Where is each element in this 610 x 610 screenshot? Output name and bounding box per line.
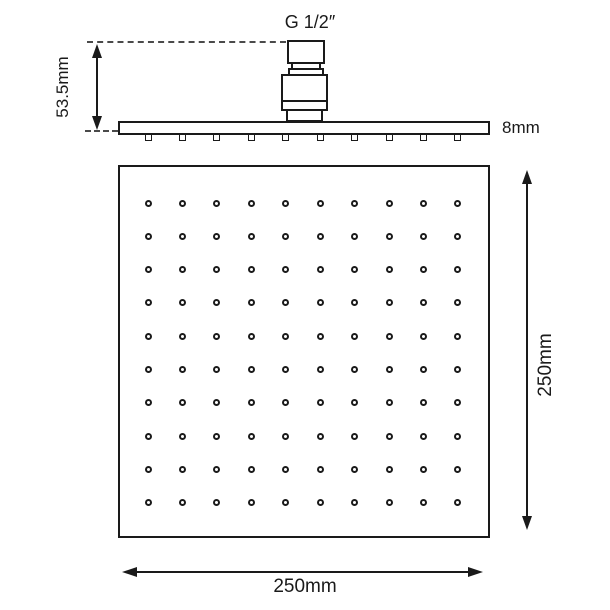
- nozzle-hole: [248, 299, 255, 306]
- top-extent-dashed-line: [87, 41, 286, 43]
- nozzle-hole: [213, 399, 220, 406]
- nozzle-hole: [213, 499, 220, 506]
- nozzle-hole: [351, 299, 358, 306]
- nozzle-hole: [420, 333, 427, 340]
- shower-head-front-view: 250mm 250mm: [0, 150, 610, 610]
- nozzle-hole: [213, 233, 220, 240]
- nozzle-hole: [454, 266, 461, 273]
- nozzle-hole: [179, 266, 186, 273]
- nozzle-hole: [145, 233, 152, 240]
- nozzle-hole: [179, 366, 186, 373]
- connector-top-block: [287, 40, 325, 64]
- nozzle-hole: [248, 366, 255, 373]
- nozzle-hole: [454, 299, 461, 306]
- shower-plate-side: [118, 121, 490, 135]
- nozzle-hole: [386, 366, 393, 373]
- nozzle-hole: [248, 433, 255, 440]
- nozzle-hole: [317, 366, 324, 373]
- nozzle-hole: [386, 399, 393, 406]
- nozzle-hole: [420, 299, 427, 306]
- nozzle-hole: [282, 233, 289, 240]
- nozzle-hole: [386, 433, 393, 440]
- nozzle-hole: [179, 433, 186, 440]
- nozzle-hole: [454, 233, 461, 240]
- nozzle-hole: [420, 200, 427, 207]
- nozzle-hole: [213, 433, 220, 440]
- nozzle-hole: [179, 399, 186, 406]
- nozzle-hole: [386, 333, 393, 340]
- nozzle-hole: [179, 233, 186, 240]
- nozzle-hole: [213, 299, 220, 306]
- nozzle-hole: [351, 200, 358, 207]
- nozzle-hole: [145, 299, 152, 306]
- nozzle-hole: [213, 466, 220, 473]
- nozzle-hole: [179, 333, 186, 340]
- height-dimension-label-front: 250mm: [536, 325, 556, 405]
- nozzle-hole: [248, 399, 255, 406]
- nozzle-hole: [351, 366, 358, 373]
- nozzle-hole: [420, 266, 427, 273]
- nozzle-hole: [317, 466, 324, 473]
- nozzle-hole: [179, 466, 186, 473]
- thread-size-label: G 1/2″: [260, 13, 360, 31]
- nozzle-hole: [351, 499, 358, 506]
- nozzle-hole: [179, 200, 186, 207]
- nozzle-hole: [145, 399, 152, 406]
- nozzle-hole: [420, 466, 427, 473]
- nozzle-hole: [454, 399, 461, 406]
- nozzle-hole: [454, 466, 461, 473]
- nozzle-hole: [248, 333, 255, 340]
- nozzle-hole: [454, 200, 461, 207]
- nozzle-hole: [248, 200, 255, 207]
- nozzle-hole: [213, 366, 220, 373]
- nozzle-hole: [420, 499, 427, 506]
- nozzle-hole: [145, 200, 152, 207]
- nozzle-hole: [248, 266, 255, 273]
- nozzle-hole: [386, 200, 393, 207]
- nozzle-hole: [386, 233, 393, 240]
- nozzle-hole: [454, 366, 461, 373]
- nozzle-hole: [420, 399, 427, 406]
- nozzle-hole: [248, 466, 255, 473]
- nozzle-hole: [145, 333, 152, 340]
- nozzle-hole: [351, 233, 358, 240]
- height-dimension-arrow-front: [526, 183, 528, 517]
- nozzle-hole: [317, 299, 324, 306]
- nozzle-hole: [351, 333, 358, 340]
- shower-head-side-view: G 1/2″ 53.5mm 8mm: [0, 0, 610, 150]
- nozzle-hole: [282, 333, 289, 340]
- nozzle-hole: [351, 433, 358, 440]
- nozzle-hole: [145, 266, 152, 273]
- nozzle-hole: [351, 466, 358, 473]
- nozzle-hole: [420, 433, 427, 440]
- nozzle-hole: [386, 266, 393, 273]
- nozzle-hole: [282, 433, 289, 440]
- nozzle-hole: [386, 499, 393, 506]
- height-dimension-label-side: 53.5mm: [54, 52, 72, 122]
- nozzle-hole: [454, 433, 461, 440]
- nozzle-hole: [454, 333, 461, 340]
- nozzle-hole: [282, 299, 289, 306]
- width-dimension-arrow-front: [136, 571, 469, 573]
- nozzle-hole: [317, 499, 324, 506]
- nozzle-hole: [282, 366, 289, 373]
- shower-head-dimension-diagram: G 1/2″ 53.5mm 8mm 250mm 250mm: [0, 0, 610, 610]
- nozzle-hole: [317, 266, 324, 273]
- nozzle-grid: [118, 165, 490, 538]
- nozzle-hole: [317, 433, 324, 440]
- nozzle-hole: [145, 499, 152, 506]
- nozzle-hole: [282, 200, 289, 207]
- nozzle-hole: [420, 233, 427, 240]
- nozzle-hole: [282, 399, 289, 406]
- nozzle-hole: [317, 333, 324, 340]
- nozzle-hole: [317, 399, 324, 406]
- width-dimension-label-front: 250mm: [255, 578, 355, 596]
- nozzle-hole: [248, 499, 255, 506]
- nozzle-hole: [179, 299, 186, 306]
- nozzle-hole: [213, 266, 220, 273]
- nozzle-hole: [282, 266, 289, 273]
- nozzle-hole: [317, 233, 324, 240]
- nozzle-hole: [386, 299, 393, 306]
- nozzle-hole: [213, 200, 220, 207]
- connector-body: [281, 74, 328, 102]
- nozzle-hole: [145, 366, 152, 373]
- thickness-label: 8mm: [502, 119, 540, 137]
- nozzle-hole: [317, 200, 324, 207]
- nozzle-hole: [179, 499, 186, 506]
- nozzle-hole: [454, 499, 461, 506]
- nozzle-hole: [282, 466, 289, 473]
- nozzle-hole: [351, 266, 358, 273]
- height-dimension-arrow-side: [96, 57, 98, 117]
- nozzle-hole: [282, 499, 289, 506]
- bottom-extent-dashed-line: [85, 130, 118, 132]
- nozzle-hole: [145, 433, 152, 440]
- nozzle-hole: [351, 399, 358, 406]
- nozzle-hole: [386, 466, 393, 473]
- nozzle-hole: [420, 366, 427, 373]
- nozzle-hole: [145, 466, 152, 473]
- nozzle-hole: [248, 233, 255, 240]
- nozzle-hole: [213, 333, 220, 340]
